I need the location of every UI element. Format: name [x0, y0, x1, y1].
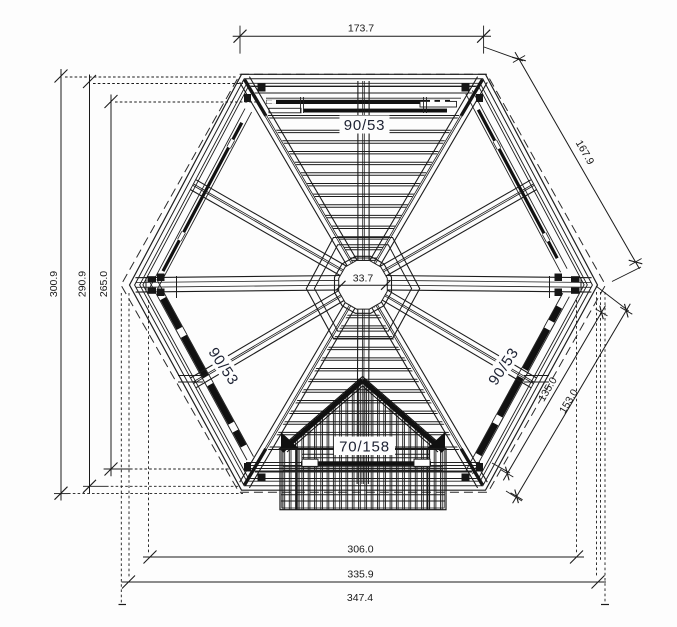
svg-text:300.9: 300.9	[48, 271, 60, 297]
svg-text:265.0: 265.0	[98, 271, 110, 297]
svg-text:33.7: 33.7	[353, 273, 374, 285]
svg-text:90/53: 90/53	[344, 117, 386, 134]
svg-text:335.9: 335.9	[347, 569, 373, 581]
svg-text:173.7: 173.7	[348, 23, 374, 35]
svg-text:306.0: 306.0	[347, 544, 373, 556]
svg-text:347.4: 347.4	[347, 592, 373, 604]
svg-text:70/158: 70/158	[339, 439, 390, 456]
svg-text:290.9: 290.9	[77, 271, 89, 297]
